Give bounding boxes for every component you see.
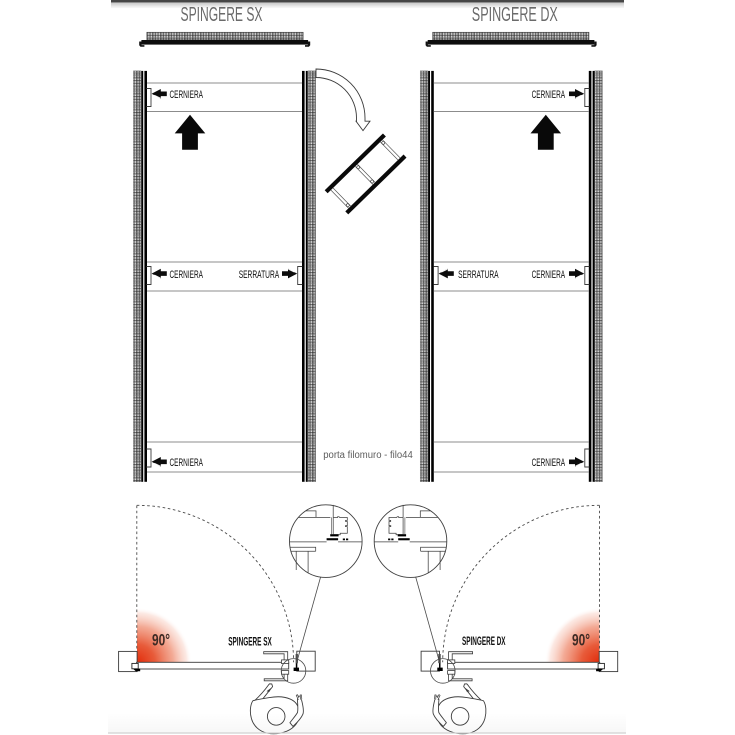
svg-text:90°: 90° [152, 632, 170, 650]
svg-text:porta filomuro - filo44: porta filomuro - filo44 [323, 450, 413, 461]
svg-text:CERNIERA: CERNIERA [532, 89, 566, 101]
svg-text:SERRATURA: SERRATURA [458, 269, 499, 281]
svg-text:SPINGERE DX: SPINGERE DX [472, 4, 558, 26]
svg-text:CERNIERA: CERNIERA [532, 457, 566, 469]
svg-text:CERNIERA: CERNIERA [170, 457, 204, 469]
svg-text:CERNIERA: CERNIERA [170, 89, 204, 101]
svg-text:90°: 90° [572, 632, 590, 650]
svg-text:SERRATURA: SERRATURA [239, 269, 280, 281]
svg-text:CERNIERA: CERNIERA [532, 269, 566, 281]
svg-text:SPINGERE DX: SPINGERE DX [462, 636, 506, 648]
svg-text:SPINGERE SX: SPINGERE SX [228, 637, 272, 649]
svg-text:SPINGERE SX: SPINGERE SX [181, 4, 263, 26]
svg-text:CERNIERA: CERNIERA [170, 269, 204, 281]
